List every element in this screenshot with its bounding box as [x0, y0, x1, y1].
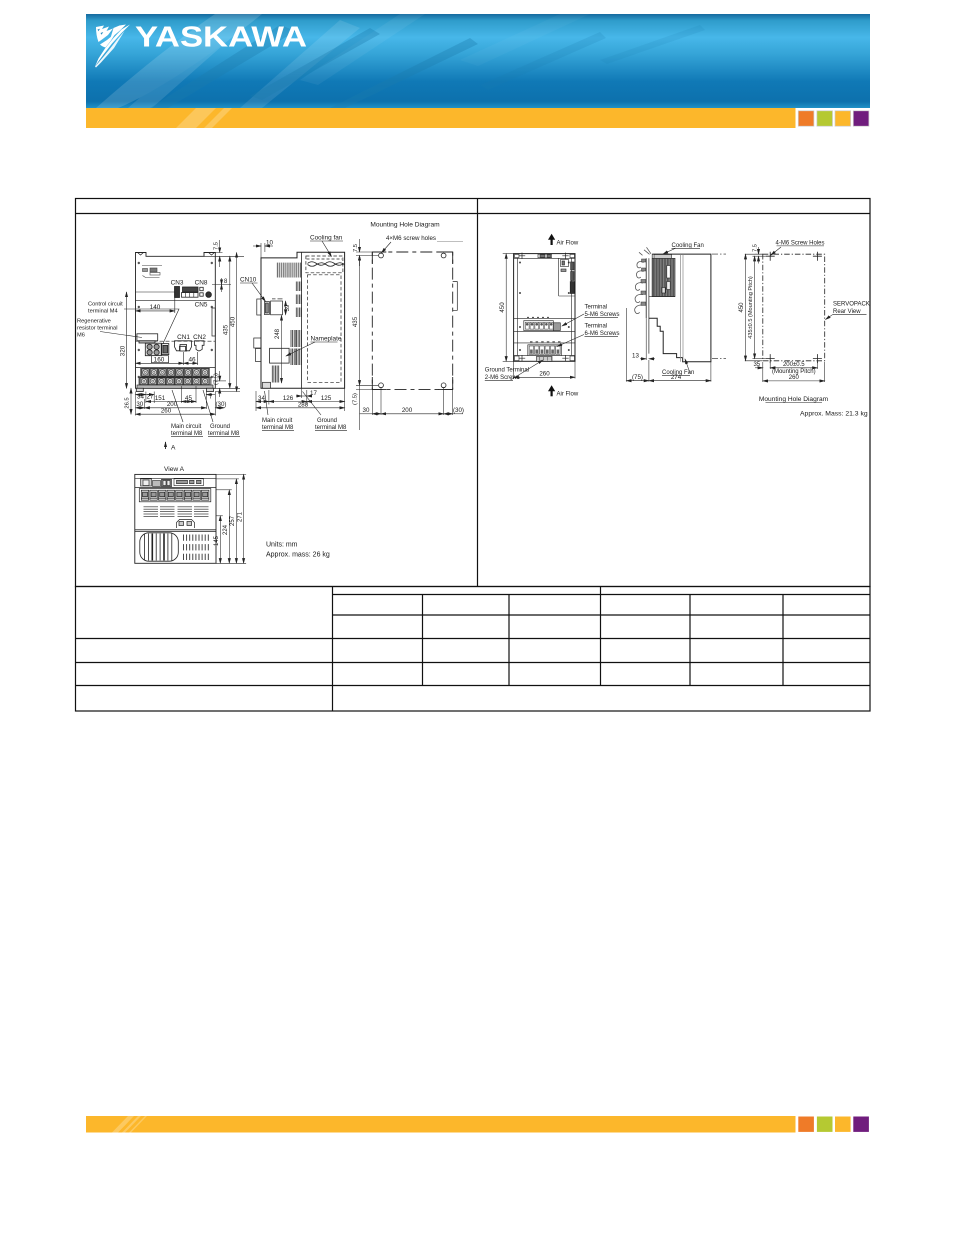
- svg-text:Ground: Ground: [210, 424, 230, 430]
- svg-text:288: 288: [298, 401, 309, 408]
- svg-text:YASKAWA: YASKAWA: [135, 22, 307, 54]
- svg-text:CN8: CN8: [195, 279, 208, 286]
- svg-text:46: 46: [188, 356, 196, 363]
- svg-text:Terminal: Terminal: [585, 305, 608, 311]
- svg-text:145: 145: [214, 535, 220, 546]
- svg-text:(30): (30): [215, 401, 226, 408]
- svg-text:125: 125: [321, 395, 332, 402]
- svg-text:450: 450: [499, 302, 506, 313]
- svg-text:4×M6 screw holes: 4×M6 screw holes: [386, 235, 436, 242]
- svg-text:26.5: 26.5: [125, 397, 131, 408]
- svg-text:(30): (30): [453, 407, 464, 414]
- svg-text:151: 151: [155, 395, 166, 402]
- svg-text:Regenerative: Regenerative: [77, 319, 111, 325]
- svg-text:(75): (75): [632, 374, 643, 381]
- svg-text:248: 248: [275, 328, 281, 339]
- svg-text:140: 140: [150, 304, 161, 311]
- svg-text:CN10: CN10: [240, 277, 257, 284]
- svg-text:SERVOPACK: SERVOPACK: [833, 302, 870, 308]
- svg-text:260: 260: [789, 375, 800, 381]
- svg-text:7: 7: [209, 393, 213, 400]
- svg-text:450: 450: [739, 302, 745, 313]
- svg-text:CN5: CN5: [195, 302, 208, 309]
- svg-text:34: 34: [258, 395, 265, 402]
- svg-text:Air Flow: Air Flow: [557, 392, 579, 398]
- svg-text:Main circuit: Main circuit: [262, 418, 293, 424]
- svg-text:435±0.5 (Mounting Pitch): 435±0.5 (Mounting Pitch): [748, 276, 754, 339]
- svg-text:CN2: CN2: [193, 334, 206, 341]
- svg-text:Mounting Hole Diagram: Mounting Hole Diagram: [759, 396, 829, 403]
- svg-text:450: 450: [229, 316, 236, 327]
- svg-text:terminal M4: terminal M4: [88, 309, 118, 315]
- svg-text:435: 435: [352, 316, 359, 327]
- svg-text:Air Flow: Air Flow: [557, 241, 579, 247]
- svg-text:160: 160: [154, 356, 165, 363]
- svg-text:M6: M6: [77, 333, 85, 339]
- svg-text:Approx. mass: 26 kg: Approx. mass: 26 kg: [266, 552, 330, 559]
- svg-text:39: 39: [285, 304, 291, 311]
- svg-text:13: 13: [632, 353, 639, 360]
- svg-text:Ground: Ground: [317, 418, 337, 424]
- svg-text:Control circuit: Control circuit: [88, 302, 123, 308]
- svg-text:320: 320: [120, 345, 127, 356]
- svg-text:resistor terminal: resistor terminal: [77, 326, 117, 332]
- svg-text:260: 260: [161, 408, 172, 415]
- svg-text:27: 27: [147, 393, 154, 400]
- svg-text:34: 34: [137, 393, 144, 400]
- svg-text:(Mounting Pitch): (Mounting Pitch): [772, 369, 816, 375]
- svg-text:Terminal: Terminal: [585, 324, 608, 330]
- svg-text:8: 8: [224, 279, 228, 285]
- svg-text:CN1: CN1: [177, 334, 190, 341]
- svg-text:CN3: CN3: [171, 279, 184, 286]
- svg-text:45: 45: [185, 395, 192, 402]
- svg-text:A: A: [171, 445, 176, 452]
- svg-text:(7.5): (7.5): [353, 393, 359, 405]
- svg-text:224: 224: [223, 524, 229, 535]
- svg-text:Main circuit: Main circuit: [171, 424, 202, 430]
- svg-text:Cooling fan: Cooling fan: [310, 235, 343, 242]
- svg-text:271: 271: [237, 511, 243, 522]
- svg-text:Mounting Hole Diagram: Mounting Hole Diagram: [370, 222, 440, 229]
- svg-text:7.5: 7.5: [353, 244, 359, 252]
- svg-text:Nameplate: Nameplate: [311, 336, 342, 343]
- svg-text:17: 17: [310, 390, 317, 397]
- svg-text:200: 200: [402, 407, 413, 414]
- svg-text:30: 30: [136, 401, 143, 408]
- svg-text:Units: mm: Units: mm: [266, 542, 298, 549]
- svg-text:View A: View A: [164, 466, 185, 473]
- svg-text:10: 10: [266, 240, 273, 247]
- svg-text:7.5: 7.5: [753, 244, 759, 252]
- svg-text:126: 126: [283, 395, 294, 402]
- svg-text:200±0.5: 200±0.5: [783, 362, 805, 368]
- svg-text:7.5: 7.5: [213, 242, 219, 250]
- svg-text:260: 260: [539, 371, 550, 378]
- svg-text:(7.5): (7.5): [214, 373, 220, 385]
- svg-text:30: 30: [363, 407, 370, 414]
- svg-text:257: 257: [230, 515, 236, 526]
- svg-text:Approx. Mass: 21.3 kg: Approx. Mass: 21.3 kg: [800, 411, 868, 418]
- svg-text:35: 35: [753, 362, 760, 368]
